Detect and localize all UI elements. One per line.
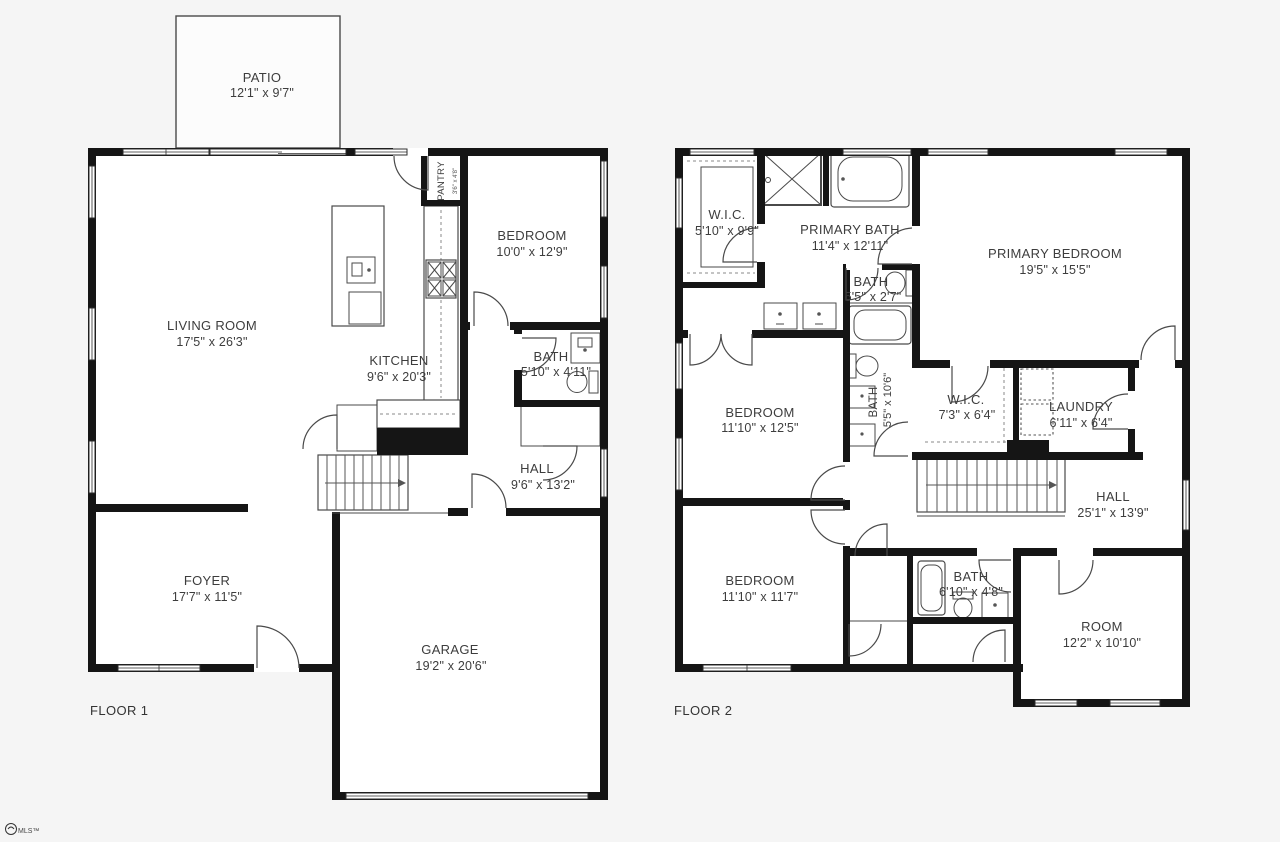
bath1-dims: 5'10" x 4'11" xyxy=(521,365,591,379)
pantry-label: PANTRY xyxy=(436,161,447,201)
primary-bedroom-label: PRIMARY BEDROOM xyxy=(988,246,1122,261)
bedroom-mid-dims: 11'10" x 12'5" xyxy=(721,421,798,435)
bedroom-mid-label: BEDROOM xyxy=(725,405,794,420)
watermark-logo: MLS™ xyxy=(6,824,40,836)
garage-label: GARAGE xyxy=(421,642,478,657)
watermark-text: MLS™ xyxy=(18,828,39,835)
stairs-floor2 xyxy=(917,458,1065,516)
kitchen-label: KITCHEN xyxy=(369,353,428,368)
garage-dims: 19'2" x 20'6" xyxy=(415,659,486,673)
bath-lower-dims: 6'10" x 4'8" xyxy=(939,585,1003,599)
laundry-label: LAUNDRY xyxy=(1049,399,1113,414)
shower-icon xyxy=(763,153,821,205)
wic-hall-dims: 7'3" x 6'4" xyxy=(939,408,996,422)
bath-lower-label: BATH xyxy=(954,569,989,584)
hall1-label: HALL xyxy=(520,461,554,476)
living-room-dims: 17'5" x 26'3" xyxy=(176,335,247,349)
bedroom-lower-dims: 11'10" x 11'7" xyxy=(722,590,798,604)
stairs-floor1 xyxy=(318,455,408,510)
floor2-title: FLOOR 2 xyxy=(674,703,732,718)
foyer-label: FOYER xyxy=(184,573,230,588)
primary-bath-label: PRIMARY BATH xyxy=(800,222,900,237)
floor1-title: FLOOR 1 xyxy=(90,703,148,718)
primary-tub-icon xyxy=(831,151,909,207)
floor1-plan: PATIO 12'1" x 9'7" LIVING ROOM 17'5" x 2… xyxy=(88,16,608,800)
kitchen-island xyxy=(332,206,384,326)
bath-mid-label: BATH xyxy=(868,386,880,417)
laundry-dims: 6'11" x 6'4" xyxy=(1049,416,1112,430)
room-dims: 12'2" x 10'10" xyxy=(1063,636,1141,650)
floorplan-canvas: PATIO 12'1" x 9'7" LIVING ROOM 17'5" x 2… xyxy=(0,0,1280,842)
hall2-label: HALL xyxy=(1096,489,1130,504)
kitchen-dims: 9'6" x 20'3" xyxy=(367,370,431,384)
bath1-label: BATH xyxy=(534,349,569,364)
kitchen-cabinet-row xyxy=(377,400,460,428)
bedroom1-dims: 10'0" x 12'9" xyxy=(496,245,567,259)
foyer-dims: 17'7" x 11'5" xyxy=(172,590,242,604)
stove-icon xyxy=(426,260,456,298)
wic-primary-dims: 5'10" x 9'9" xyxy=(695,224,759,238)
bedroom-lower-label: BEDROOM xyxy=(725,573,794,588)
toilet-room-dims: 5'5" x 2'7" xyxy=(845,290,902,304)
pantry-dims: 3'6" x 4'8" xyxy=(453,168,459,194)
primary-bedroom-dims: 19'5" x 15'5" xyxy=(1019,263,1090,277)
hall2-dims: 25'1" x 13'9" xyxy=(1077,506,1148,520)
room-label: ROOM xyxy=(1081,619,1123,634)
garage-door xyxy=(346,793,588,799)
floor2-plan: W.I.C. 5'10" x 9'9" PRIMARY BATH 11'4" x… xyxy=(674,148,1190,718)
primary-bath-dims: 11'4" x 12'11" xyxy=(812,239,888,253)
bath-mid-dims: 5'5" x 10'6" xyxy=(882,373,894,427)
toilet-room-label: BATH xyxy=(854,274,889,289)
hall1-dims: 9'6" x 13'2" xyxy=(511,478,575,492)
patio-dims: 12'1" x 9'7" xyxy=(230,86,294,100)
bedroom1-label: BEDROOM xyxy=(497,228,566,243)
living-room-label: LIVING ROOM xyxy=(167,318,257,333)
wic-primary-label: W.I.C. xyxy=(708,207,745,222)
wic-hall-label: W.I.C. xyxy=(947,392,984,407)
patio-label: PATIO xyxy=(243,70,282,85)
